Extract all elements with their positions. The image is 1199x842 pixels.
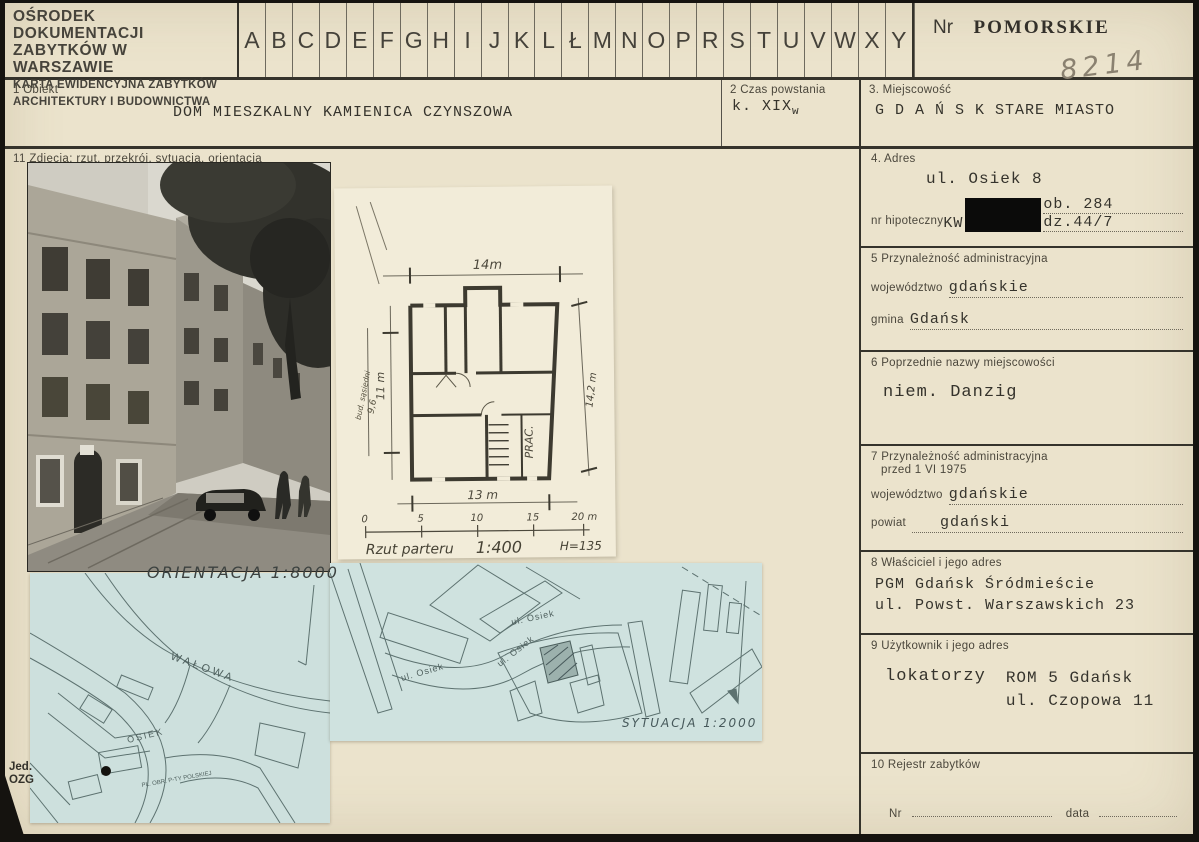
fields-row-top: 1 Obiekt DOM MIESZKALNY KAMIENICA CZYNSZ… bbox=[5, 80, 1193, 149]
svg-text:14m: 14m bbox=[473, 258, 502, 273]
alphabet-cell: T bbox=[751, 3, 778, 77]
county-label: powiat bbox=[871, 517, 906, 530]
organization-block: OŚRODEK DOKUMENTACJI ZABYTKÓW W WARSZAWI… bbox=[5, 3, 239, 77]
svg-text:WAŁOWA: WAŁOWA bbox=[169, 651, 236, 685]
region-stamp: POMORSKIE bbox=[974, 17, 1110, 38]
alphabet-cell: S bbox=[724, 3, 751, 77]
owner-line1: PGM Gdańsk Śródmieście bbox=[875, 574, 1183, 595]
alphabet-cell: H bbox=[428, 3, 455, 77]
card-body: 11 Zdjęcia: rzut, przekrój, sytuacja, or… bbox=[5, 148, 1193, 834]
org-name-line2: ZABYTKÓW W WARSZAWIE bbox=[13, 42, 231, 76]
field-2-date: 2 Czas powstania k. XIXw bbox=[722, 80, 861, 146]
svg-text:SYTUACJA 1:2000: SYTUACJA 1:2000 bbox=[622, 716, 757, 730]
org-name-line1: OŚRODEK DOKUMENTACJI bbox=[13, 8, 231, 42]
field-7-label-line1: 7 Przynależność administracyjna bbox=[871, 451, 1183, 464]
field-5-label: 5 Przynależność administracyjna bbox=[871, 253, 1183, 266]
field-10-label: 10 Rejestr zabytków bbox=[871, 759, 1183, 772]
register-nr-label: Nr bbox=[889, 808, 902, 821]
field-4-address: 4. Adres ul. Osiek 8 nr hipoteczny KW ob… bbox=[861, 148, 1193, 248]
alphabet-cell: R bbox=[697, 3, 724, 77]
svg-text:13 m: 13 m bbox=[467, 488, 498, 502]
nr-label: Nr bbox=[933, 17, 953, 39]
field-8-label: 8 Właściciel i jego adres bbox=[871, 557, 1183, 570]
situation-map-drawing: ul. Osiek ul. Osiek ul. Osiek SYTUACJA 1… bbox=[330, 563, 762, 741]
field-3-value: G D A Ń S K STARE MIASTO bbox=[875, 102, 1193, 119]
alphabet-cell: F bbox=[374, 3, 401, 77]
user-line1: ROM 5 Gdańsk bbox=[1006, 667, 1154, 690]
svg-text:15: 15 bbox=[526, 512, 539, 523]
alphabet-cell: J bbox=[482, 3, 509, 77]
floor-plan-sketch: 14m bbox=[334, 186, 616, 560]
field-9-user: 9 Użytkownik i jego adres lokatorzy ROM … bbox=[861, 635, 1193, 754]
orientation-map: WAŁOWA OSIEK PL. OBR. P-TY POLSKIEJ bbox=[30, 573, 330, 823]
register-date-line bbox=[1099, 802, 1177, 817]
alphabet-cell: U bbox=[778, 3, 805, 77]
field-1-object: 1 Obiekt DOM MIESZKALNY KAMIENICA CZYNSZ… bbox=[5, 80, 722, 146]
floor-plan-drawing: 14m bbox=[334, 186, 616, 560]
alphabet-cell: L bbox=[535, 3, 562, 77]
alphabet-cell: D bbox=[320, 3, 347, 77]
alphabet-cell: O bbox=[643, 3, 670, 77]
mortgage-label: nr hipoteczny bbox=[871, 215, 943, 228]
field-4-mortgage-row: nr hipoteczny KW ob. 284 dz.44/7 bbox=[871, 196, 1183, 232]
redaction-box bbox=[965, 198, 1041, 232]
svg-text:9,6: 9,6 bbox=[367, 398, 380, 414]
user-line2: ul. Czopowa 11 bbox=[1006, 690, 1154, 713]
alphabet-cell: A bbox=[239, 3, 266, 77]
corner-unit-note: Jed. OZG bbox=[9, 761, 34, 787]
field-9-label: 9 Użytkownik i jego adres bbox=[871, 640, 1183, 653]
svg-text:1:400: 1:400 bbox=[476, 538, 522, 557]
register-nr-line bbox=[912, 802, 1052, 817]
alphabet-cell: N bbox=[616, 3, 643, 77]
voivodeship-value-2: gdańskie bbox=[949, 486, 1183, 505]
commune-label: gmina bbox=[871, 314, 904, 327]
alphabet-cell: Ł bbox=[562, 3, 589, 77]
alphabet-cell: E bbox=[347, 3, 374, 77]
svg-text:Rzut parteru: Rzut parteru bbox=[366, 541, 454, 558]
owner-line2: ul. Powst. Warszawskich 23 bbox=[875, 595, 1183, 616]
alphabet-cell: B bbox=[266, 3, 293, 77]
field-1-value: DOM MIESZKALNY KAMIENICA CZYNSZOWA bbox=[173, 104, 721, 121]
fields-column: 4. Adres ul. Osiek 8 nr hipoteczny KW ob… bbox=[859, 148, 1193, 834]
field-2-value: k. XIXw bbox=[732, 98, 859, 118]
svg-text:14,2 m: 14,2 m bbox=[584, 372, 599, 408]
alphabet-cell: W bbox=[832, 3, 859, 77]
location-dot bbox=[101, 766, 111, 776]
field-6-former-names: 6 Poprzednie nazwy miejscowości niem. Da… bbox=[861, 352, 1193, 446]
field-8-owner: 8 Właściciel i jego adres PGM Gdańsk Śró… bbox=[861, 552, 1193, 635]
alphabet-cell: Y bbox=[886, 3, 912, 77]
user-type: lokatorzy bbox=[885, 667, 986, 713]
alphabet-cell: K bbox=[509, 3, 536, 77]
mortgage-ob: ob. 284 bbox=[1043, 196, 1183, 214]
svg-text:11 m: 11 m bbox=[374, 372, 387, 400]
card-header: OŚRODEK DOKUMENTACJI ZABYTKÓW W WARSZAWI… bbox=[5, 3, 1193, 80]
orientation-map-caption: ORIENTACJA 1:8000 bbox=[147, 563, 339, 582]
field-1-label: 1 Obiekt bbox=[5, 80, 721, 96]
voivodeship-value: gdańskie bbox=[949, 279, 1183, 298]
card-number-box: Nr POMORSKIE 8214 bbox=[914, 3, 1193, 77]
alphabet-cell: X bbox=[859, 3, 886, 77]
field-10-monument-register: 10 Rejestr zabytków Nr data bbox=[861, 754, 1193, 834]
alphabet-index-strip: A B C D E F G H I J K L Ł M N O P R S T … bbox=[239, 3, 914, 77]
heritage-record-card: OŚRODEK DOKUMENTACJI ZABYTKÓW W WARSZAWI… bbox=[5, 3, 1193, 834]
commune-value: Gdańsk bbox=[910, 311, 1183, 330]
situation-map: ul. Osiek ul. Osiek ul. Osiek SYTUACJA 1… bbox=[330, 563, 762, 741]
field-3-label: 3. Miejscowość bbox=[861, 80, 1193, 96]
field-7-administration-pre-1975: 7 Przynależność administracyjna przed 1 … bbox=[861, 446, 1193, 552]
alphabet-cell: V bbox=[805, 3, 832, 77]
alphabet-cell: C bbox=[293, 3, 320, 77]
county-value: gdański bbox=[912, 514, 1183, 533]
field-4-address-value: ul. Osiek 8 bbox=[926, 170, 1183, 188]
mortgage-dz: dz.44/7 bbox=[1043, 214, 1183, 232]
field-5-administration: 5 Przynależność administracyjna wojewódz… bbox=[861, 248, 1193, 352]
svg-text:PRAC.: PRAC. bbox=[523, 425, 536, 458]
field-2-label: 2 Czas powstania bbox=[722, 80, 859, 96]
svg-text:0: 0 bbox=[361, 514, 367, 525]
register-date-label: data bbox=[1066, 808, 1090, 821]
building-photo-illustration bbox=[28, 163, 330, 571]
svg-text:10: 10 bbox=[470, 513, 483, 524]
voivodeship-label-2: województwo bbox=[871, 489, 943, 502]
svg-text:5: 5 bbox=[417, 514, 423, 525]
field-7-label-line2: przed 1 VI 1975 bbox=[871, 464, 1183, 477]
field-6-value: niem. Danzig bbox=[883, 382, 1183, 404]
field-6-label: 6 Poprzednie nazwy miejscowości bbox=[871, 357, 1183, 370]
svg-text:PL. OBR. P-TY POLSKIEJ: PL. OBR. P-TY POLSKIEJ bbox=[141, 771, 212, 789]
field-4-label: 4. Adres bbox=[871, 153, 1183, 166]
building-photo bbox=[28, 163, 330, 571]
alphabet-cell: P bbox=[670, 3, 697, 77]
svg-text:ul. Osiek: ul. Osiek bbox=[510, 608, 555, 627]
mortgage-kw: KW bbox=[943, 215, 963, 232]
svg-text:20 m: 20 m bbox=[571, 512, 597, 523]
voivodeship-label: województwo bbox=[871, 282, 943, 295]
svg-text:ul. Osiek: ul. Osiek bbox=[495, 634, 536, 669]
svg-text:H=135: H=135 bbox=[560, 539, 602, 553]
alphabet-cell: G bbox=[401, 3, 428, 77]
orientation-map-drawing: WAŁOWA OSIEK PL. OBR. P-TY POLSKIEJ bbox=[30, 573, 330, 823]
field-3-locality: 3. Miejscowość G D A Ń S K STARE MIASTO bbox=[861, 80, 1193, 146]
alphabet-cell: M bbox=[589, 3, 616, 77]
alphabet-cell: I bbox=[455, 3, 482, 77]
field-11-photos-area: 11 Zdjęcia: rzut, przekrój, sytuacja, or… bbox=[5, 148, 859, 834]
